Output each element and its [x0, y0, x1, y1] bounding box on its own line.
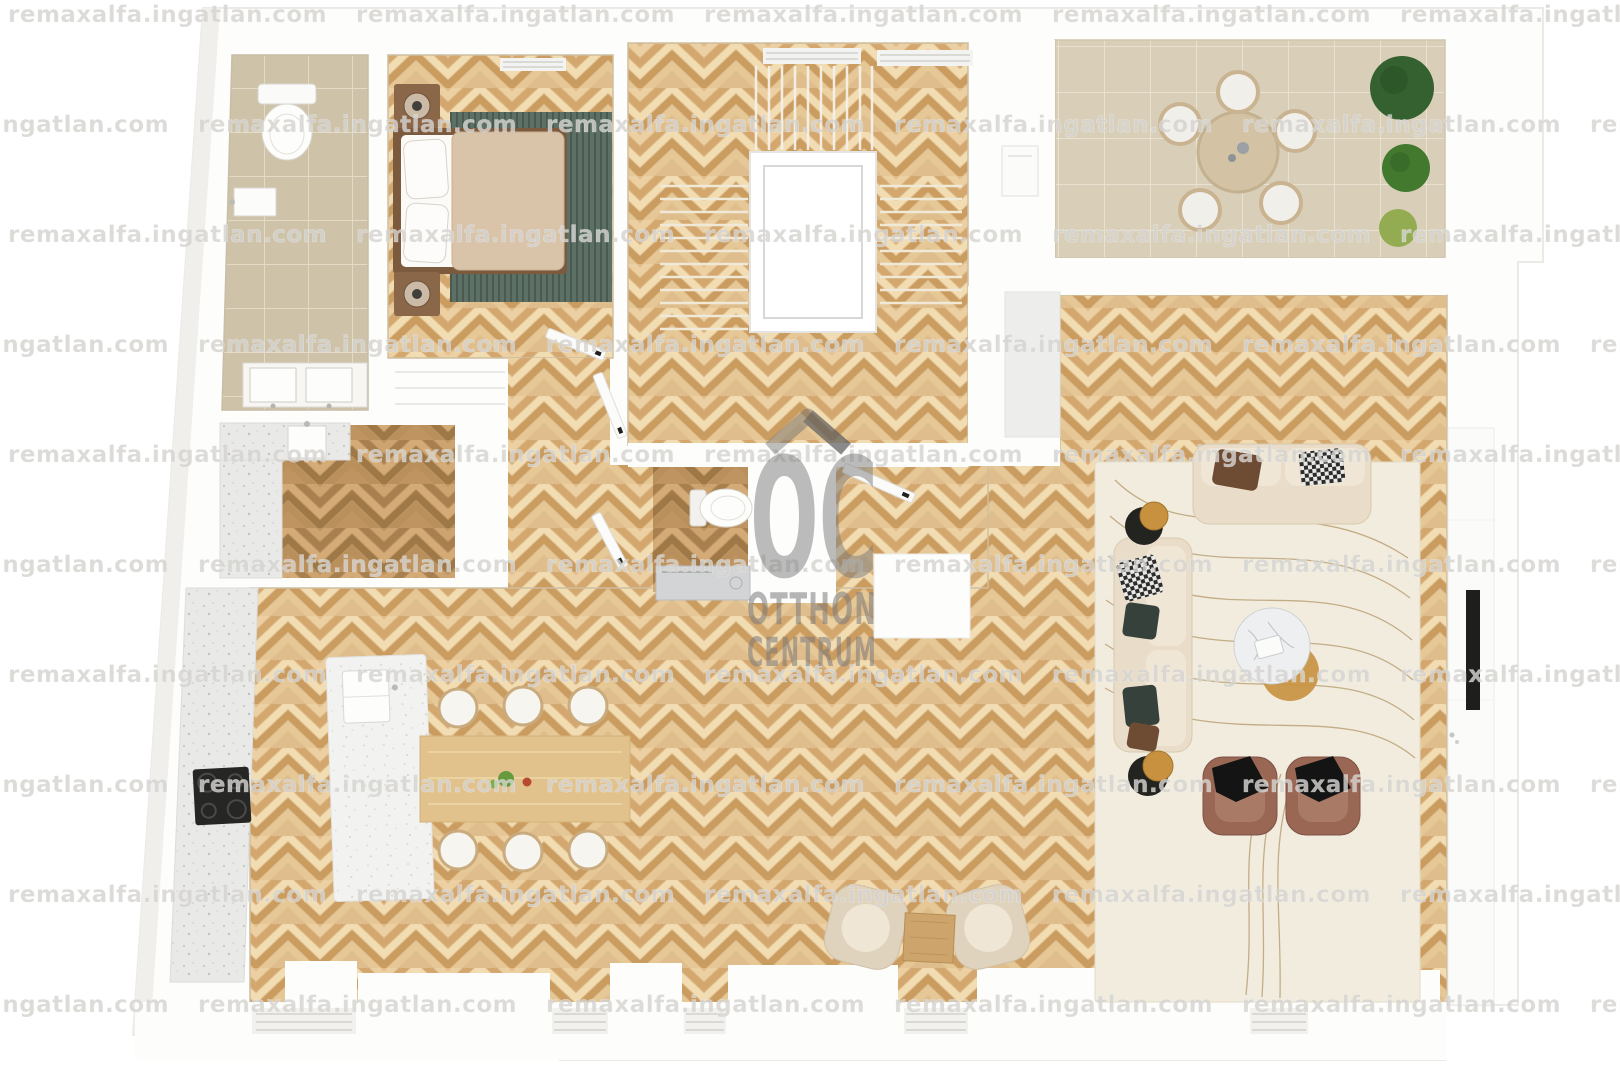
watermark-text: remaxalfa.ingatlan.com — [1590, 992, 1620, 1018]
terrace-door-unit — [1002, 146, 1038, 196]
watermark-text: remaxalfa.ingatlan.com — [356, 662, 675, 688]
window-slot-top-1 — [763, 48, 861, 64]
watermark-text: remaxalfa.ingatlan.com — [8, 662, 327, 688]
watermark-text: remaxalfa.ingatlan.com — [894, 992, 1213, 1018]
watermark-text: remaxalfa.ingatlan.com — [1052, 662, 1371, 688]
watermark-text: remaxalfa.ingatlan.com — [1590, 112, 1620, 138]
utility-faucet — [304, 421, 310, 427]
wall-sink — [234, 188, 276, 216]
watermark-text: remaxalfa.ingatlan.com — [1052, 442, 1371, 468]
watermark-text: remaxalfa.ingatlan.com — [198, 332, 517, 358]
watermark-text: remaxalfa.ingatlan.com — [198, 772, 517, 798]
pocket-door-panel — [1005, 292, 1060, 437]
watermark-text: remaxalfa.ingatlan.com — [1400, 882, 1620, 908]
watermark-text: remaxalfa.ingatlan.com — [0, 332, 169, 358]
watermark-text: remaxalfa.ingatlan.com — [0, 992, 169, 1018]
watermark-text: remaxalfa.ingatlan.com — [1242, 772, 1561, 798]
watermark-text: remaxalfa.ingatlan.com — [894, 332, 1213, 358]
watermark-text: remaxalfa.ingatlan.com — [356, 2, 675, 28]
pillow-green-2 — [1122, 684, 1160, 727]
watermark-text: remaxalfa.ingatlan.com — [704, 2, 1023, 28]
watermark-text: remaxalfa.ingatlan.com — [1052, 222, 1371, 248]
logo-word-centrum: CENTRUM — [747, 630, 877, 676]
floorplan-render: remaxalfa.ingatlan.comremaxalfa.ingatlan… — [0, 0, 1620, 1080]
wall-terrace-bottom — [1032, 258, 1447, 295]
watermark-text: remaxalfa.ingatlan.com — [1242, 332, 1561, 358]
watermark-text: remaxalfa.ingatlan.com — [894, 772, 1213, 798]
watermark-text: remaxalfa.ingatlan.com — [0, 552, 169, 578]
pillow-brown-2 — [1126, 722, 1160, 753]
watermark-text: remaxalfa.ingatlan.com — [704, 222, 1023, 248]
watermark-text: remaxalfa.ingatlan.com — [1590, 772, 1620, 798]
watermark-text: remaxalfa.ingatlan.com — [8, 2, 327, 28]
wall-sink-faucet — [229, 199, 235, 205]
watermark-text: remaxalfa.ingatlan.com — [546, 772, 865, 798]
logo-word-otthon: OTTHON — [747, 584, 877, 635]
lamp-bottom-bulb — [412, 289, 422, 299]
lamp-top-bulb — [412, 101, 422, 111]
watermark-text: remaxalfa.ingatlan.com — [1590, 332, 1620, 358]
watermark-text: remaxalfa.ingatlan.com — [894, 112, 1213, 138]
watermark-text: remaxalfa.ingatlan.com — [1400, 442, 1620, 468]
bed-duvet — [452, 132, 564, 270]
watermark-text: remaxalfa.ingatlan.com — [0, 772, 169, 798]
watermark-text: remaxalfa.ingatlan.com — [198, 552, 517, 578]
terrace-table-decor-2 — [1228, 154, 1236, 162]
table-decor-tomato — [523, 778, 532, 787]
watermark-text: remaxalfa.ingatlan.com — [356, 882, 675, 908]
tv-screen — [1466, 590, 1480, 710]
watermark-text: remaxalfa.ingatlan.com — [1242, 112, 1561, 138]
vanity-sink-left — [250, 368, 296, 402]
watermark-text: remaxalfa.ingatlan.com — [356, 442, 675, 468]
watermark-text: remaxalfa.ingatlan.com — [704, 882, 1023, 908]
wc-toilet-bowl — [700, 489, 752, 527]
watermark-text: remaxalfa.ingatlan.com — [546, 112, 865, 138]
watermark-text: remaxalfa.ingatlan.com — [546, 992, 865, 1018]
watermark-text: remaxalfa.ingatlan.com — [198, 112, 517, 138]
vanity-faucet-right — [327, 404, 332, 409]
vanity-sink-right — [306, 368, 352, 402]
watermark-text: remaxalfa.ingatlan.com — [198, 992, 517, 1018]
watermark-text: remaxalfa.ingatlan.com — [1400, 2, 1620, 28]
pillow-green-1 — [1122, 602, 1160, 640]
door-hardware-dot-1 — [1450, 733, 1455, 738]
watermark-text: remaxalfa.ingatlan.com — [1400, 662, 1620, 688]
toilet-tank — [258, 84, 316, 104]
door-hardware-dot-2 — [1455, 740, 1459, 744]
floorplan-svg: remaxalfa.ingatlan.comremaxalfa.ingatlan… — [0, 0, 1620, 1080]
watermark-text: remaxalfa.ingatlan.com — [894, 552, 1213, 578]
watermark-text: remaxalfa.ingatlan.com — [8, 882, 327, 908]
window-slot-bedroom — [500, 58, 566, 71]
plant-medium-shade — [1390, 152, 1410, 172]
watermark-text: remaxalfa.ingatlan.com — [8, 442, 327, 468]
watermark-text: remaxalfa.ingatlan.com — [546, 332, 865, 358]
watermark-text: remaxalfa.ingatlan.com — [0, 112, 169, 138]
bed-pillow-top — [403, 139, 449, 200]
watermark-text: remaxalfa.ingatlan.com — [1242, 992, 1561, 1018]
agency-logo: OC OTTHON CENTRUM — [747, 416, 878, 676]
tv-console — [1448, 428, 1494, 1005]
watermark-text: remaxalfa.ingatlan.com — [1052, 882, 1371, 908]
watermark-text: remaxalfa.ingatlan.com — [1242, 552, 1561, 578]
watermark-text: remaxalfa.ingatlan.com — [1590, 552, 1620, 578]
watermark-text: remaxalfa.ingatlan.com — [356, 222, 675, 248]
vanity-faucet-left — [271, 404, 276, 409]
plant-large-shade — [1380, 66, 1408, 94]
watermark-text: remaxalfa.ingatlan.com — [1052, 2, 1371, 28]
terrace-table-decor-1 — [1237, 142, 1249, 154]
watermark-text: remaxalfa.ingatlan.com — [8, 222, 327, 248]
window-slot-top-2 — [877, 50, 973, 66]
watermark-text: remaxalfa.ingatlan.com — [1400, 222, 1620, 248]
lounge-side-table — [903, 913, 955, 964]
